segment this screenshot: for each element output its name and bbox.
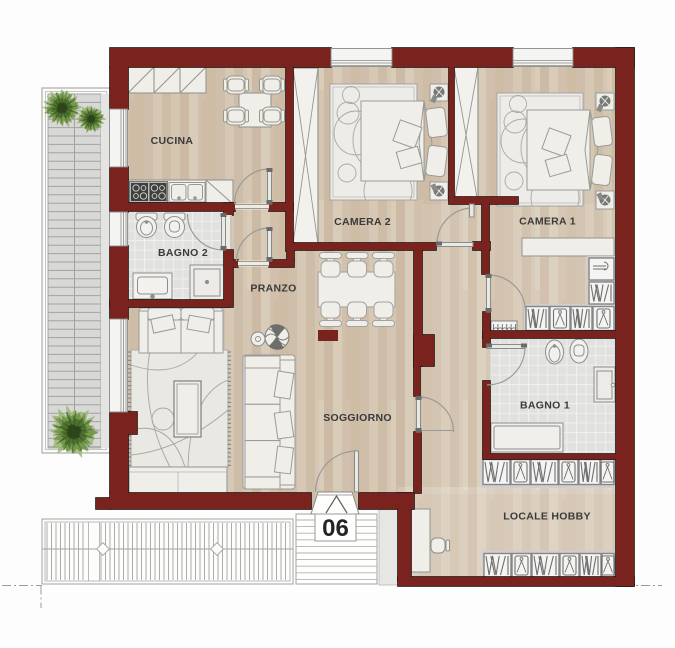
svg-text:CAMERA 2: CAMERA 2 — [334, 216, 391, 228]
svg-text:PRANZO: PRANZO — [250, 283, 296, 295]
svg-text:CAMERA 1: CAMERA 1 — [519, 216, 576, 228]
svg-text:BAGNO 2: BAGNO 2 — [158, 247, 208, 259]
svg-text:06: 06 — [322, 515, 349, 542]
svg-text:SOGGIORNO: SOGGIORNO — [323, 412, 392, 424]
svg-text:CUCINA: CUCINA — [151, 135, 194, 147]
svg-text:LOCALE HOBBY: LOCALE HOBBY — [503, 511, 591, 523]
svg-text:BAGNO 1: BAGNO 1 — [520, 400, 570, 412]
